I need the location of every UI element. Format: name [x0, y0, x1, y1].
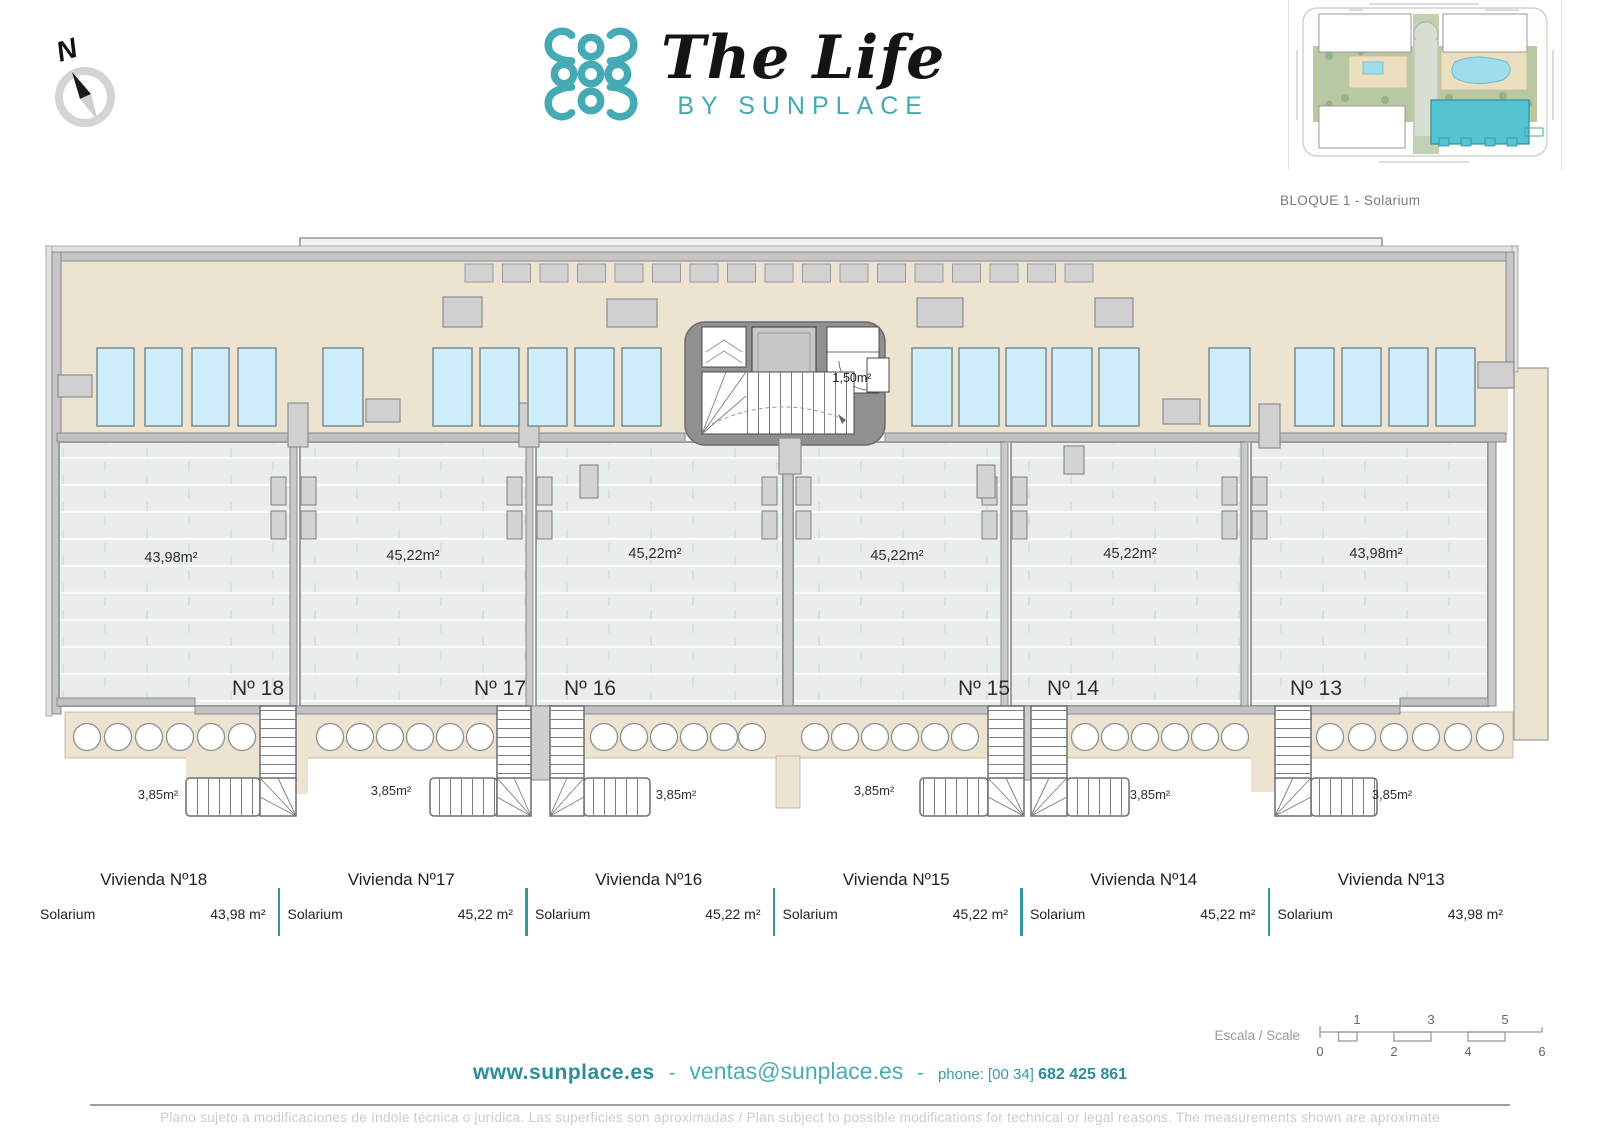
summary-room: Solarium — [40, 906, 95, 922]
unit-label: Nº 18 — [232, 677, 284, 700]
unit-label: Nº 15 — [958, 677, 1010, 700]
deck-terrace-wall — [57, 433, 685, 442]
summary-title: Vivienda Nº14 — [1020, 870, 1268, 890]
area-label: 45,22m² — [386, 548, 439, 564]
email-link[interactable]: ventas@sunplace.es — [689, 1058, 903, 1085]
area-label: 45,22m² — [628, 546, 681, 562]
area-label: 43,98m² — [144, 550, 197, 566]
stair-core: 1,50m² — [685, 322, 889, 445]
table-divider — [773, 888, 776, 936]
summary-area: 45,22 m² — [705, 906, 760, 922]
summary-col-17: Vivienda Nº17 Solarium45,22 m² — [278, 862, 526, 942]
table-divider — [278, 888, 281, 936]
summary-col-13: Vivienda Nº13 Solarium43,98 m² — [1268, 862, 1516, 942]
area-label: 45,22m² — [870, 548, 923, 564]
unit-label: Nº 16 — [564, 677, 616, 700]
separator-dash: - — [669, 1062, 676, 1085]
table-divider — [1268, 888, 1271, 936]
unit-label: Nº 13 — [1290, 677, 1342, 700]
stair-area-label: 3,85m² — [1130, 787, 1171, 802]
scale-tick: 1 — [1353, 1012, 1360, 1027]
stair-area-label: 3,85m² — [371, 783, 412, 798]
summary-area: 45,22 m² — [1200, 906, 1255, 922]
phone-label: phone: [00 34] 682 425 861 — [938, 1066, 1127, 1084]
pergola-slats — [465, 264, 1093, 282]
unit-label: Nº 14 — [1047, 677, 1099, 700]
disclaimer-text: Plano sujeto a modificaciones de índole … — [0, 1110, 1600, 1125]
summary-area: 45,22 m² — [458, 906, 513, 922]
scale-label: Escala / Scale — [1214, 1028, 1300, 1043]
deck-terrace-wall — [885, 433, 1506, 442]
unit-label: Nº 17 — [474, 677, 526, 700]
unit-summary-table: Vivienda Nº18 Solarium43,98 m² Vivienda … — [30, 862, 1515, 942]
summary-title: Vivienda Nº17 — [278, 870, 526, 890]
area-label: 45,22m² — [1103, 546, 1156, 562]
scale-tick: 5 — [1501, 1012, 1508, 1027]
summary-room: Solarium — [1030, 906, 1085, 922]
summary-col-18: Vivienda Nº18 Solarium43,98 m² — [30, 862, 278, 942]
footer-contact: www.sunplace.es - ventas@sunplace.es - p… — [0, 1058, 1600, 1085]
stair-area-label: 3,85m² — [656, 787, 697, 802]
table-divider — [525, 888, 528, 936]
scale-tick: 6 — [1538, 1044, 1545, 1059]
scale-tick: 4 — [1464, 1044, 1471, 1059]
stair-area-label: 3,85m² — [138, 787, 179, 802]
summary-area: 45,22 m² — [953, 906, 1008, 922]
scale-tick: 3 — [1427, 1012, 1434, 1027]
summary-title: Vivienda Nº16 — [525, 870, 773, 890]
summary-area: 43,98 m² — [210, 906, 265, 922]
summary-title: Vivienda Nº18 — [30, 870, 278, 890]
footer-divider-line — [90, 1104, 1510, 1106]
summary-room: Solarium — [288, 906, 343, 922]
summary-col-15: Vivienda Nº15 Solarium45,22 m² — [773, 862, 1021, 942]
summary-title: Vivienda Nº15 — [773, 870, 1021, 890]
website-link[interactable]: www.sunplace.es — [473, 1061, 655, 1085]
phone-number: 682 425 861 — [1038, 1066, 1127, 1083]
summary-room: Solarium — [783, 906, 838, 922]
floorplan: 1,50m² — [0, 0, 1600, 860]
summary-room: Solarium — [535, 906, 590, 922]
stair-area-label: 3,85m² — [1372, 787, 1413, 802]
summary-area: 43,98 m² — [1448, 906, 1503, 922]
scale-tick: 2 — [1390, 1044, 1397, 1059]
summary-col-14: Vivienda Nº14 Solarium45,22 m² — [1020, 862, 1268, 942]
area-label: 43,98m² — [1349, 546, 1402, 562]
core-area-label: 1,50m² — [833, 371, 872, 385]
scale-tick: 0 — [1316, 1044, 1323, 1059]
table-divider — [1020, 888, 1023, 936]
separator-dash: - — [917, 1062, 924, 1085]
scale-bar: Escala / Scale 1 3 5 0 2 4 6 — [1200, 1000, 1560, 1062]
stair-area-labels: 3,85m² 3,85m² 3,85m² 3,85m² 3,85m² 3,85m… — [138, 783, 1413, 802]
summary-room: Solarium — [1278, 906, 1333, 922]
summary-title: Vivienda Nº13 — [1268, 870, 1516, 890]
stair-area-label: 3,85m² — [854, 783, 895, 798]
summary-col-16: Vivienda Nº16 Solarium45,22 m² — [525, 862, 773, 942]
